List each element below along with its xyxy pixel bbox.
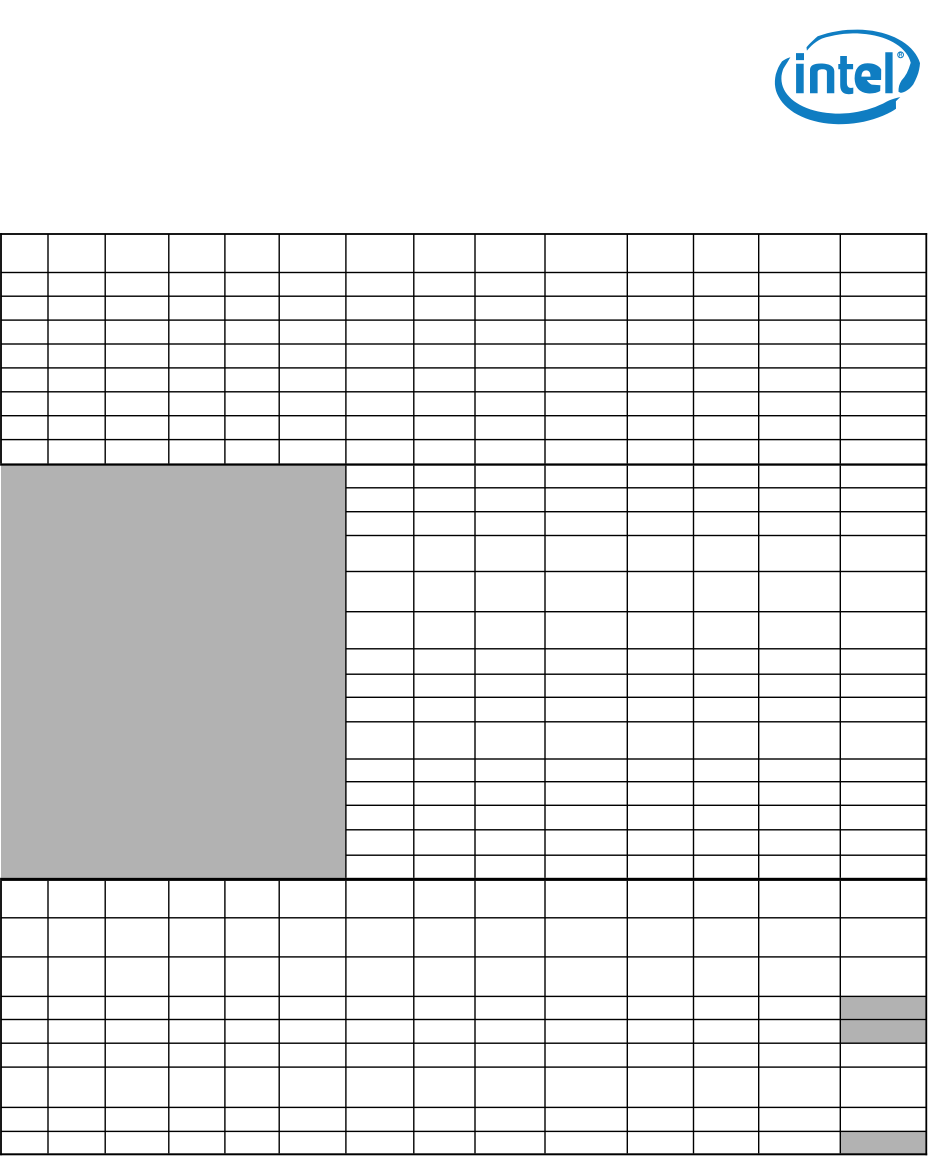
svg-text:R: R xyxy=(899,53,903,59)
